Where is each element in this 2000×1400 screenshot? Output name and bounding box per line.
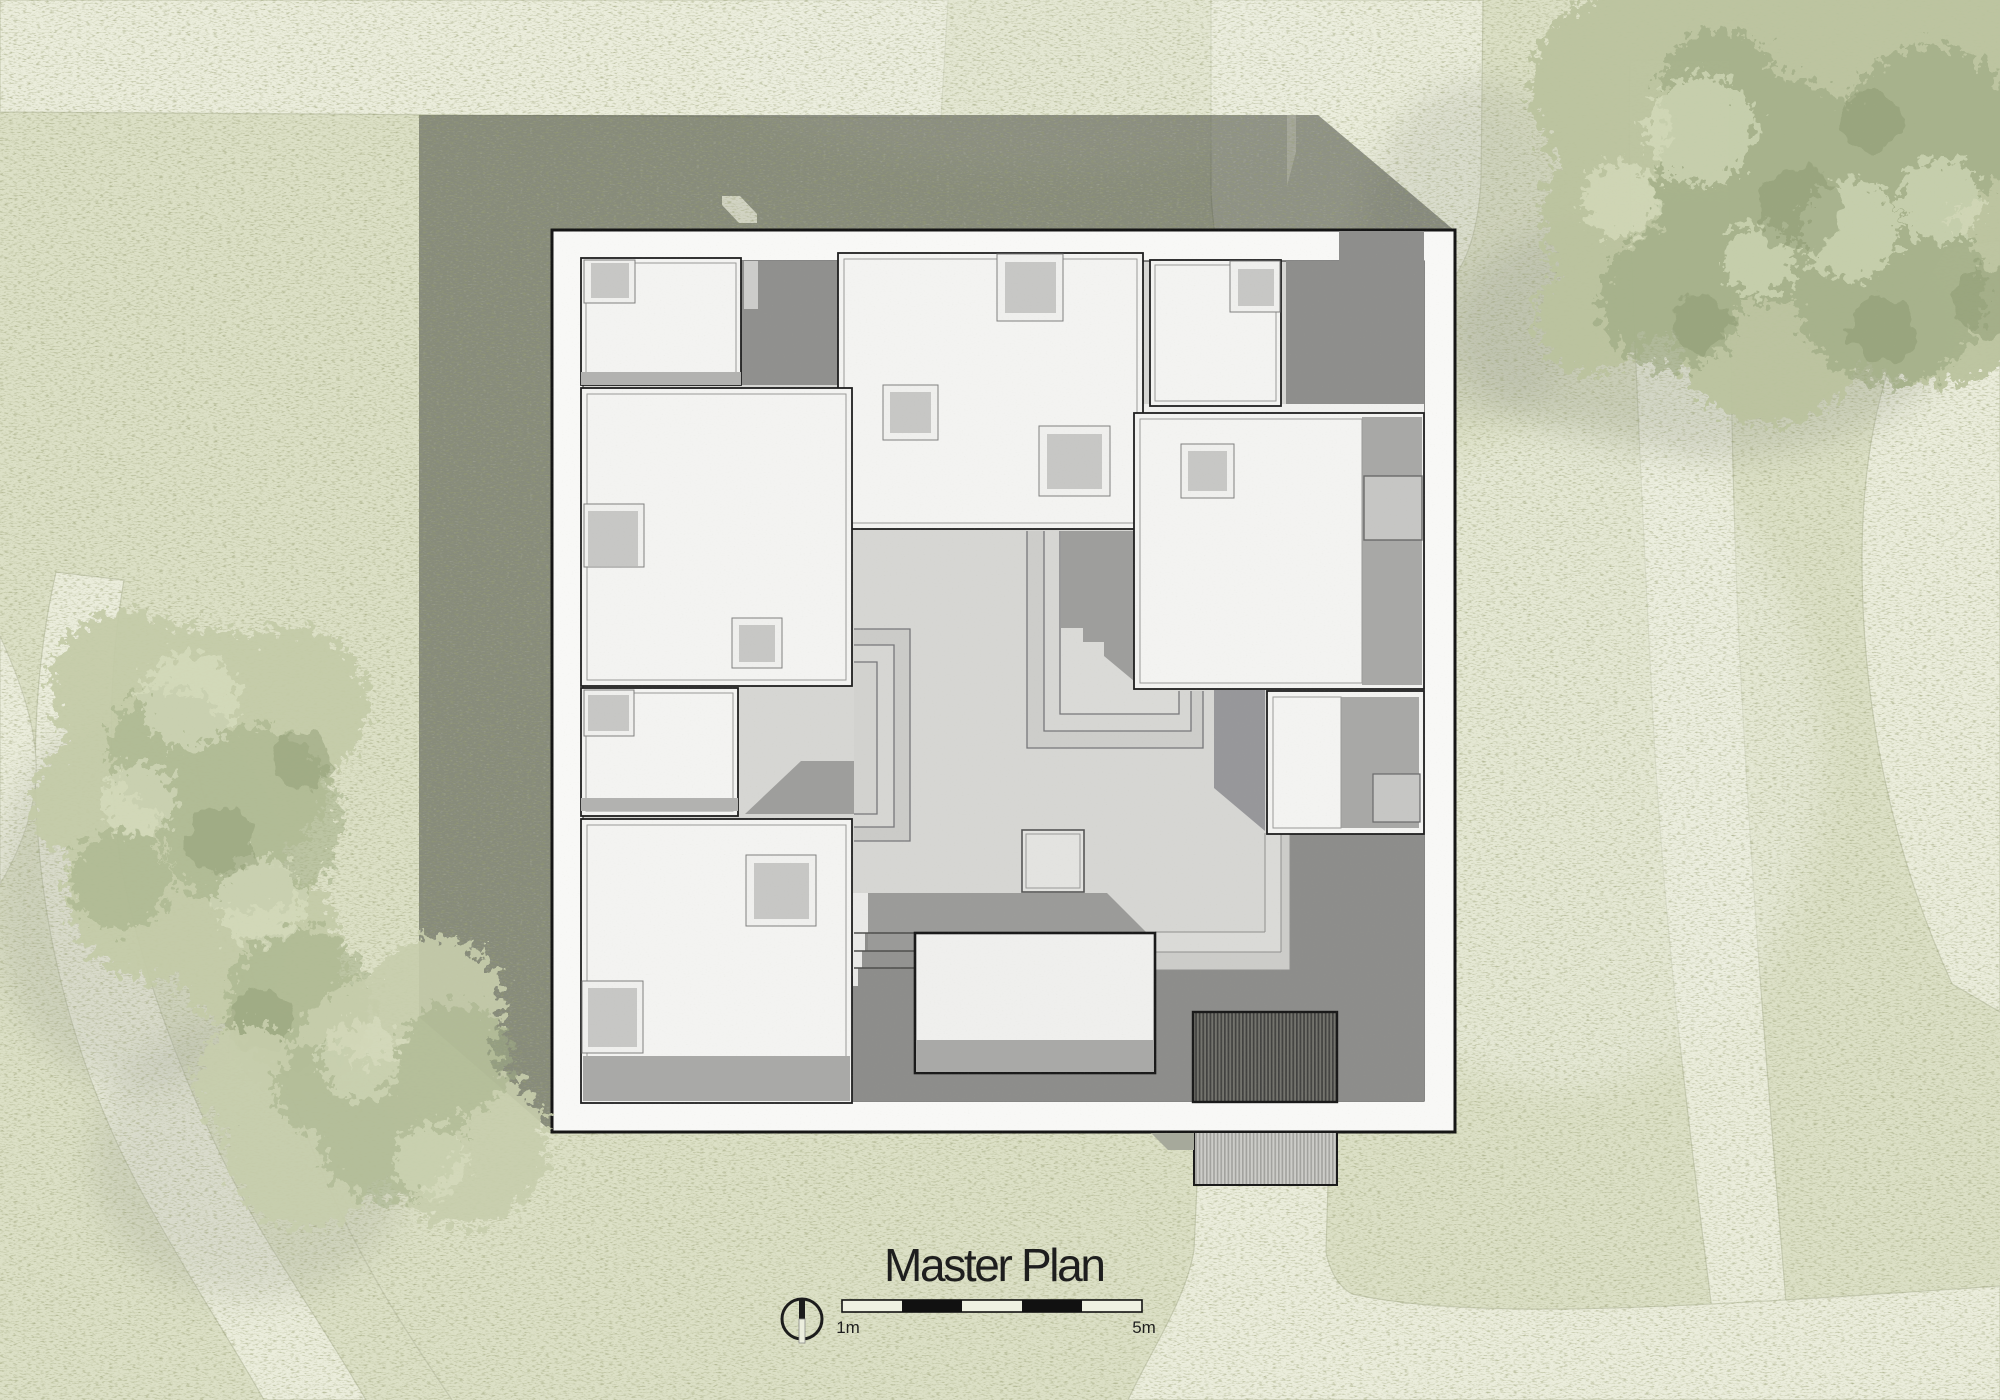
svg-text:5m: 5m — [1132, 1318, 1156, 1337]
svg-text:Master Plan: Master Plan — [884, 1239, 1106, 1291]
svg-text:1m: 1m — [836, 1318, 860, 1337]
